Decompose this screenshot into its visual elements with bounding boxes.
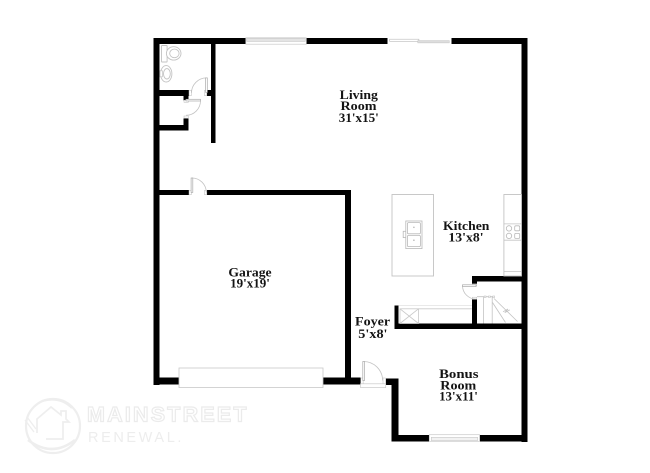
svg-text:MAINSTREET: MAINSTREET	[87, 402, 249, 426]
svg-text:RENEWAL.: RENEWAL.	[88, 430, 184, 446]
svg-text:19'x19': 19'x19'	[230, 277, 270, 291]
svg-text:5'x8': 5'x8'	[358, 327, 387, 341]
svg-text:13'x8': 13'x8'	[448, 230, 483, 244]
svg-text:13'x11': 13'x11'	[439, 390, 478, 404]
svg-text:31'x15': 31'x15'	[339, 111, 379, 125]
